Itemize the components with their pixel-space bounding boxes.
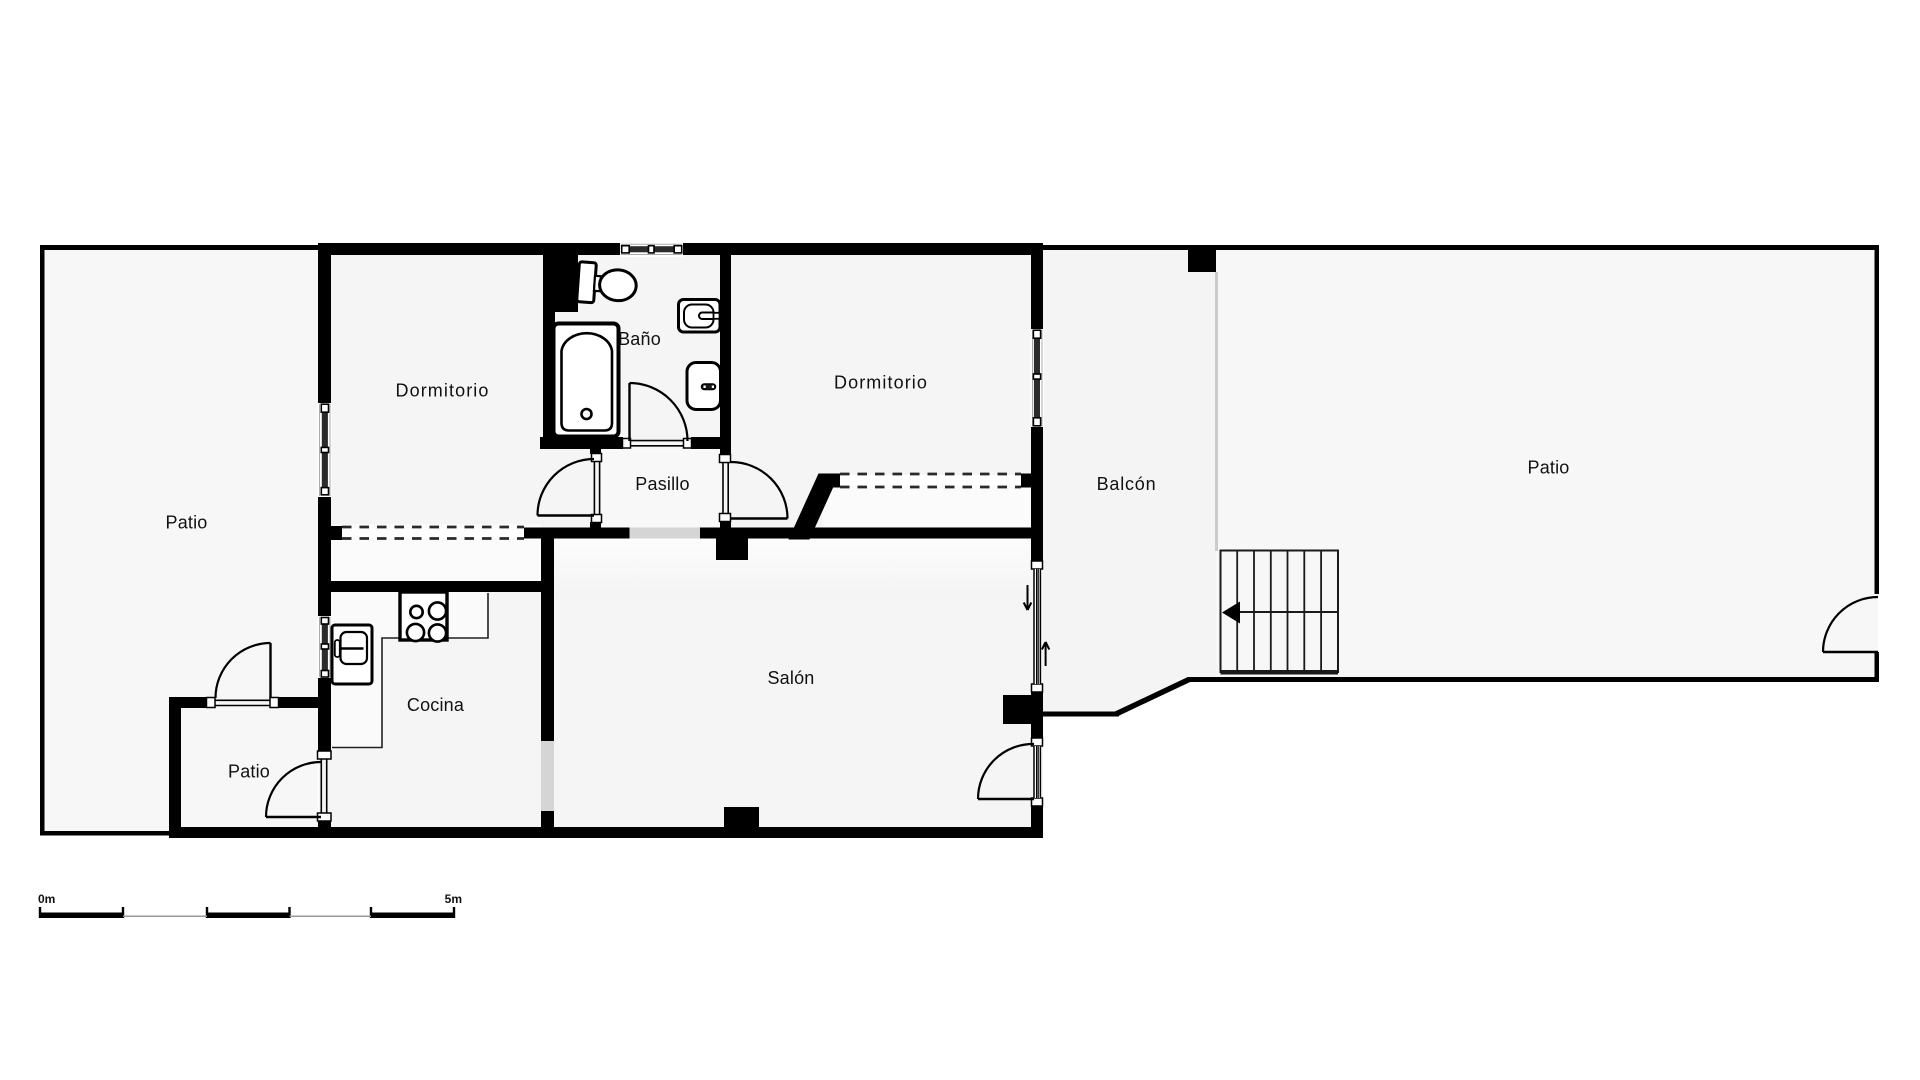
svg-text:5m: 5m <box>445 892 462 906</box>
svg-text:Balcón: Balcón <box>1097 474 1157 494</box>
svg-text:Patio: Patio <box>228 762 270 782</box>
svg-text:Pasillo: Pasillo <box>635 474 689 494</box>
svg-text:Patio: Patio <box>165 513 207 533</box>
svg-text:Dormitorio: Dormitorio <box>395 381 489 401</box>
svg-text:Baño: Baño <box>618 329 661 349</box>
svg-text:Salón: Salón <box>767 668 814 688</box>
svg-text:Cocina: Cocina <box>407 695 465 715</box>
svg-text:0m: 0m <box>38 892 55 906</box>
svg-text:Patio: Patio <box>1527 458 1569 478</box>
svg-text:Dormitorio: Dormitorio <box>834 373 928 393</box>
